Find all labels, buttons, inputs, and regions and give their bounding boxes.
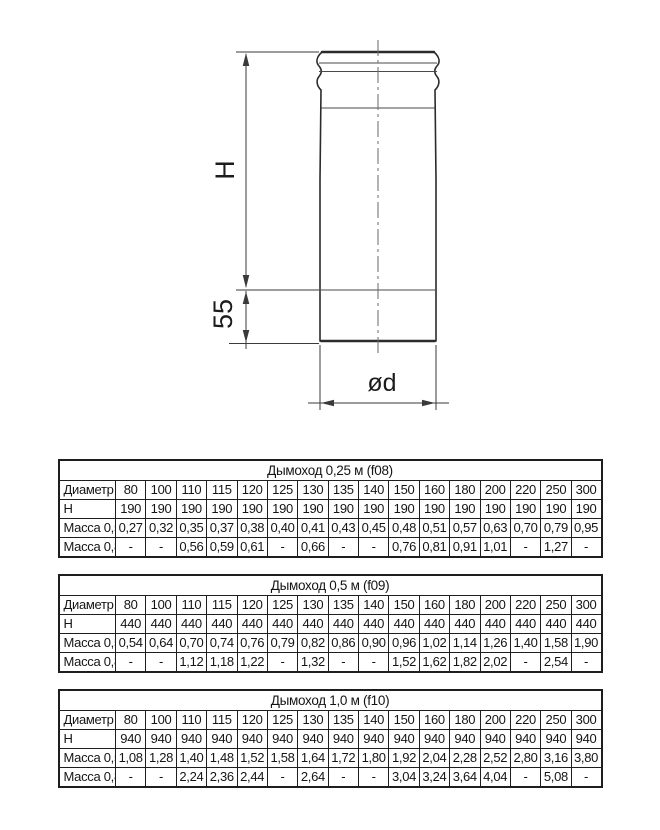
diameter-value: 150 — [389, 711, 419, 730]
diameter-value: 300 — [571, 596, 601, 615]
diameter-value: 140 — [359, 481, 389, 500]
row-label: H — [59, 730, 116, 749]
diameter-value: 200 — [480, 596, 510, 615]
table-title: Дымоход 1,0 м (f10) — [59, 690, 602, 711]
value-cell: 190 — [571, 500, 601, 519]
diameter-value: 135 — [328, 596, 358, 615]
value-cell: 440 — [207, 615, 237, 634]
value-cell: 0,54 — [116, 634, 146, 653]
value-cell: 440 — [510, 615, 540, 634]
value-cell: 940 — [419, 730, 449, 749]
value-cell: 2,04 — [419, 749, 449, 768]
value-cell: 190 — [389, 500, 419, 519]
value-cell: - — [146, 768, 176, 788]
diameter-value: 200 — [480, 711, 510, 730]
value-cell: 440 — [116, 615, 146, 634]
value-cell: - — [328, 653, 358, 673]
value-cell: 0,74 — [207, 634, 237, 653]
value-cell: 440 — [359, 615, 389, 634]
value-cell: 1,62 — [419, 653, 449, 673]
value-cell: 0,43 — [328, 519, 358, 538]
value-cell: 440 — [389, 615, 419, 634]
value-cell: 440 — [146, 615, 176, 634]
value-cell: 940 — [541, 730, 571, 749]
dimension-55-label: 55 — [208, 299, 238, 329]
value-cell: 940 — [510, 730, 540, 749]
row-label: H — [59, 615, 116, 634]
dimension-h-label: H — [210, 160, 240, 180]
diameter-value: 130 — [298, 711, 328, 730]
diameter-value: 160 — [419, 596, 449, 615]
value-cell: 0,35 — [176, 519, 206, 538]
value-cell: - — [328, 768, 358, 788]
value-cell: 3,16 — [541, 749, 571, 768]
value-cell: - — [146, 653, 176, 673]
value-cell: - — [510, 653, 540, 673]
diameter-value: 300 — [571, 711, 601, 730]
value-cell: - — [267, 653, 297, 673]
value-cell: 0,32 — [146, 519, 176, 538]
dimension-diameter-label: ød — [367, 369, 396, 397]
value-cell: 0,48 — [389, 519, 419, 538]
value-cell: 0,82 — [298, 634, 328, 653]
value-cell: 1,32 — [298, 653, 328, 673]
value-cell: 1,80 — [359, 749, 389, 768]
value-cell: 1,28 — [146, 749, 176, 768]
value-cell: 0,95 — [571, 519, 601, 538]
value-cell: 440 — [176, 615, 206, 634]
value-cell: 440 — [450, 615, 480, 634]
value-cell: 0,51 — [419, 519, 449, 538]
value-cell: 0,38 — [237, 519, 267, 538]
value-cell: 190 — [541, 500, 571, 519]
value-cell: 190 — [480, 500, 510, 519]
value-cell: 1,82 — [450, 653, 480, 673]
value-cell: 1,14 — [450, 634, 480, 653]
value-cell: 940 — [328, 730, 358, 749]
diameter-value: 110 — [176, 481, 206, 500]
value-cell: 1,40 — [176, 749, 206, 768]
diameter-header: Диаметр — [59, 596, 116, 615]
value-cell: - — [571, 768, 601, 788]
value-cell: 2,44 — [237, 768, 267, 788]
row-label: Масса 0,8 — [59, 653, 116, 673]
value-cell: 2,52 — [480, 749, 510, 768]
value-cell: 190 — [176, 500, 206, 519]
value-cell: 190 — [419, 500, 449, 519]
value-cell: 0,61 — [237, 538, 267, 558]
value-cell: 0,41 — [298, 519, 328, 538]
value-cell: 1,90 — [571, 634, 601, 653]
diameter-value: 125 — [267, 596, 297, 615]
row-label: Масса 0,5 — [59, 519, 116, 538]
value-cell: 440 — [237, 615, 267, 634]
value-cell: - — [116, 768, 146, 788]
value-cell: 1,27 — [541, 538, 571, 558]
value-cell: 2,80 — [510, 749, 540, 768]
value-cell: 1,26 — [480, 634, 510, 653]
value-cell: 0,76 — [237, 634, 267, 653]
dimension-55 — [229, 290, 319, 349]
dimension-h — [236, 52, 319, 288]
value-cell: 0,79 — [267, 634, 297, 653]
value-cell: 2,02 — [480, 653, 510, 673]
value-cell: 940 — [480, 730, 510, 749]
value-cell: 2,64 — [298, 768, 328, 788]
value-cell: 190 — [298, 500, 328, 519]
diameter-value: 180 — [450, 711, 480, 730]
value-cell: 1,64 — [298, 749, 328, 768]
value-cell: - — [116, 653, 146, 673]
value-cell: 940 — [176, 730, 206, 749]
value-cell: 0,91 — [450, 538, 480, 558]
diameter-value: 250 — [541, 596, 571, 615]
value-cell: 1,52 — [389, 653, 419, 673]
diameter-value: 160 — [419, 481, 449, 500]
value-cell: 190 — [237, 500, 267, 519]
diameter-value: 200 — [480, 481, 510, 500]
value-cell: 440 — [298, 615, 328, 634]
diameter-value: 220 — [510, 481, 540, 500]
value-cell: 0,63 — [480, 519, 510, 538]
value-cell: 1,58 — [541, 634, 571, 653]
value-cell: 1,12 — [176, 653, 206, 673]
value-cell: 2,24 — [176, 768, 206, 788]
value-cell: 2,28 — [450, 749, 480, 768]
diameter-value: 125 — [267, 711, 297, 730]
value-cell: 1,40 — [510, 634, 540, 653]
value-cell: 0,56 — [176, 538, 206, 558]
diameter-header: Диаметр — [59, 711, 116, 730]
value-cell: 0,86 — [328, 634, 358, 653]
value-cell: 190 — [359, 500, 389, 519]
diameter-value: 150 — [389, 596, 419, 615]
spec-tables: Дымоход 0,25 м (f08)Диаметр8010011011512… — [0, 459, 660, 788]
value-cell: 2,36 — [207, 768, 237, 788]
diameter-value: 120 — [237, 481, 267, 500]
diameter-value: 115 — [207, 596, 237, 615]
spec-table-2: Дымоход 1,0 м (f10)Диаметр80100110115120… — [58, 689, 603, 788]
value-cell: - — [571, 653, 601, 673]
value-cell: 1,92 — [389, 749, 419, 768]
diameter-value: 100 — [146, 711, 176, 730]
value-cell: 940 — [359, 730, 389, 749]
value-cell: 0,59 — [207, 538, 237, 558]
value-cell: 190 — [267, 500, 297, 519]
value-cell: 1,02 — [419, 634, 449, 653]
diameter-value: 250 — [541, 711, 571, 730]
value-cell: - — [328, 538, 358, 558]
value-cell: 0,66 — [298, 538, 328, 558]
diameter-value: 100 — [146, 596, 176, 615]
diameter-value: 130 — [298, 481, 328, 500]
value-cell: 440 — [328, 615, 358, 634]
value-cell: 940 — [267, 730, 297, 749]
value-cell: 440 — [541, 615, 571, 634]
value-cell: 0,79 — [541, 519, 571, 538]
row-label: Масса 0,8 — [59, 768, 116, 788]
value-cell: 0,70 — [510, 519, 540, 538]
table-title: Дымоход 0,5 м (f09) — [59, 575, 602, 596]
value-cell: 0,57 — [450, 519, 480, 538]
value-cell: 4,04 — [480, 768, 510, 788]
row-label: Масса 0,8 — [59, 538, 116, 558]
diameter-value: 150 — [389, 481, 419, 500]
value-cell: 3,24 — [419, 768, 449, 788]
value-cell: 940 — [116, 730, 146, 749]
value-cell: - — [146, 538, 176, 558]
value-cell: 1,72 — [328, 749, 358, 768]
diameter-value: 220 — [510, 596, 540, 615]
table-title: Дымоход 0,25 м (f08) — [59, 460, 602, 481]
value-cell: 440 — [480, 615, 510, 634]
value-cell: 3,64 — [450, 768, 480, 788]
value-cell: - — [359, 653, 389, 673]
value-cell: 1,48 — [207, 749, 237, 768]
diameter-value: 180 — [450, 481, 480, 500]
value-cell: 190 — [207, 500, 237, 519]
value-cell: - — [359, 768, 389, 788]
technical-drawing: H 55 ød — [0, 0, 660, 452]
value-cell: 1,22 — [237, 653, 267, 673]
row-label: Масса 0,5 — [59, 749, 116, 768]
value-cell: 0,90 — [359, 634, 389, 653]
value-cell: 190 — [450, 500, 480, 519]
diameter-value: 160 — [419, 711, 449, 730]
diameter-value: 80 — [116, 481, 146, 500]
value-cell: 190 — [510, 500, 540, 519]
value-cell: 0,70 — [176, 634, 206, 653]
diameter-value: 130 — [298, 596, 328, 615]
value-cell: 190 — [328, 500, 358, 519]
value-cell: 1,08 — [116, 749, 146, 768]
value-cell: 1,18 — [207, 653, 237, 673]
value-cell: 0,64 — [146, 634, 176, 653]
value-cell: 190 — [146, 500, 176, 519]
value-cell: 440 — [419, 615, 449, 634]
value-cell: 940 — [450, 730, 480, 749]
diameter-value: 135 — [328, 481, 358, 500]
page: H 55 ød Дымоход 0,25 м (f08)Диаметр80100… — [0, 0, 660, 830]
value-cell: 1,52 — [237, 749, 267, 768]
diameter-value: 120 — [237, 711, 267, 730]
value-cell: 0,37 — [207, 519, 237, 538]
value-cell: - — [510, 538, 540, 558]
value-cell: 1,58 — [267, 749, 297, 768]
value-cell: 940 — [298, 730, 328, 749]
value-cell: 0,96 — [389, 634, 419, 653]
diameter-value: 180 — [450, 596, 480, 615]
diameter-value: 80 — [116, 711, 146, 730]
diameter-value: 250 — [541, 481, 571, 500]
diameter-value: 140 — [359, 711, 389, 730]
value-cell: - — [267, 768, 297, 788]
diameter-value: 110 — [176, 596, 206, 615]
value-cell: 940 — [389, 730, 419, 749]
diameter-value: 110 — [176, 711, 206, 730]
value-cell: - — [510, 768, 540, 788]
diameter-value: 80 — [116, 596, 146, 615]
value-cell: 0,27 — [116, 519, 146, 538]
value-cell: 5,08 — [541, 768, 571, 788]
value-cell: 0,40 — [267, 519, 297, 538]
value-cell: - — [267, 538, 297, 558]
value-cell: 0,45 — [359, 519, 389, 538]
value-cell: 3,04 — [389, 768, 419, 788]
value-cell: 0,81 — [419, 538, 449, 558]
diameter-value: 300 — [571, 481, 601, 500]
value-cell: 0,76 — [389, 538, 419, 558]
value-cell: - — [359, 538, 389, 558]
spec-table-1: Дымоход 0,5 м (f09)Диаметр80100110115120… — [58, 574, 603, 673]
diameter-value: 115 — [207, 711, 237, 730]
value-cell: 940 — [207, 730, 237, 749]
diameter-value: 135 — [328, 711, 358, 730]
diameter-value: 120 — [237, 596, 267, 615]
value-cell: 190 — [116, 500, 146, 519]
diameter-value: 115 — [207, 481, 237, 500]
value-cell: 1,01 — [480, 538, 510, 558]
value-cell: 940 — [146, 730, 176, 749]
diameter-value: 220 — [510, 711, 540, 730]
diameter-value: 100 — [146, 481, 176, 500]
value-cell: 2,54 — [541, 653, 571, 673]
diameter-header: Диаметр — [59, 481, 116, 500]
row-label: H — [59, 500, 116, 519]
spec-table-0: Дымоход 0,25 м (f08)Диаметр8010011011512… — [58, 459, 603, 558]
value-cell: 440 — [571, 615, 601, 634]
value-cell: 940 — [237, 730, 267, 749]
diameter-value: 140 — [359, 596, 389, 615]
value-cell: - — [116, 538, 146, 558]
diameter-value: 125 — [267, 481, 297, 500]
value-cell: 940 — [571, 730, 601, 749]
value-cell: - — [571, 538, 601, 558]
row-label: Масса 0,5 — [59, 634, 116, 653]
value-cell: 440 — [267, 615, 297, 634]
value-cell: 3,80 — [571, 749, 601, 768]
